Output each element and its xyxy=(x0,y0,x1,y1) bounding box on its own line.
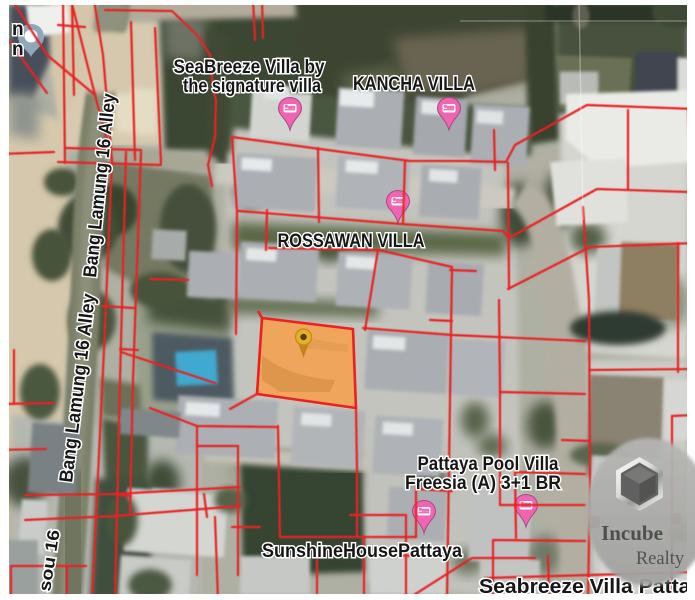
svg-text:Freesia (A) 3+1 BR: Freesia (A) 3+1 BR xyxy=(405,473,561,494)
svg-text:SunshineHousePattaya: SunshineHousePattaya xyxy=(262,540,462,562)
svg-text:n: n xyxy=(12,19,24,40)
svg-text:the signature villa: the signature villa xyxy=(183,76,321,97)
svg-text:n: n xyxy=(12,39,24,60)
svg-text:Pattaya Pool Villa: Pattaya Pool Villa xyxy=(418,454,559,475)
svg-text:KANCHA VILLA: KANCHA VILLA xyxy=(353,73,475,95)
svg-text:Realty: Realty xyxy=(636,549,685,569)
svg-text:ROSSAWAN VILLA: ROSSAWAN VILLA xyxy=(278,230,425,252)
svg-text:SeaBreeze Villa by: SeaBreeze Villa by xyxy=(174,57,325,78)
svg-text:Incube: Incube xyxy=(601,521,663,545)
